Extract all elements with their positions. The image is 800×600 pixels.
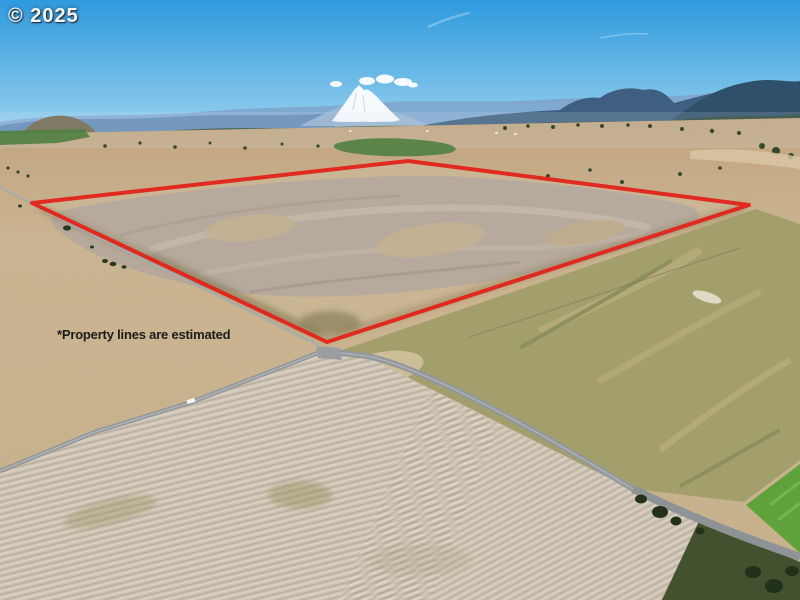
scene xyxy=(0,0,800,600)
property-lines-disclaimer: *Property lines are estimated xyxy=(57,327,230,342)
copyright-watermark: © 2025 xyxy=(8,5,79,28)
aerial-property-photo: © 2025 *Property lines are estimated xyxy=(0,0,800,600)
